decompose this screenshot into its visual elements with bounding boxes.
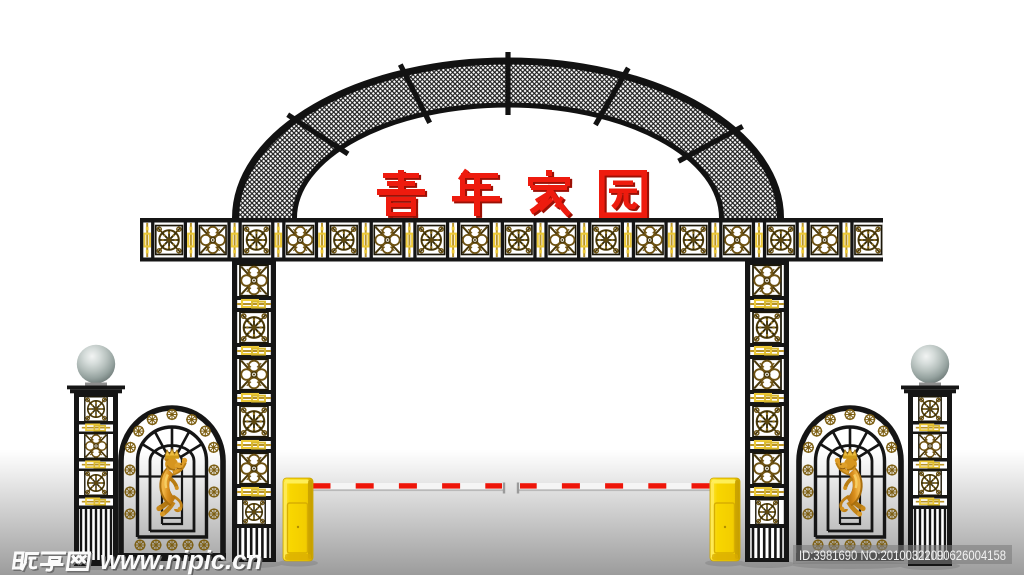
svg-text:www.nipic.cn: www.nipic.cn bbox=[100, 547, 262, 575]
svg-text:ID:3981690 NO:2010032209062600: ID:3981690 NO:20100322090626004158 bbox=[799, 547, 1006, 563]
